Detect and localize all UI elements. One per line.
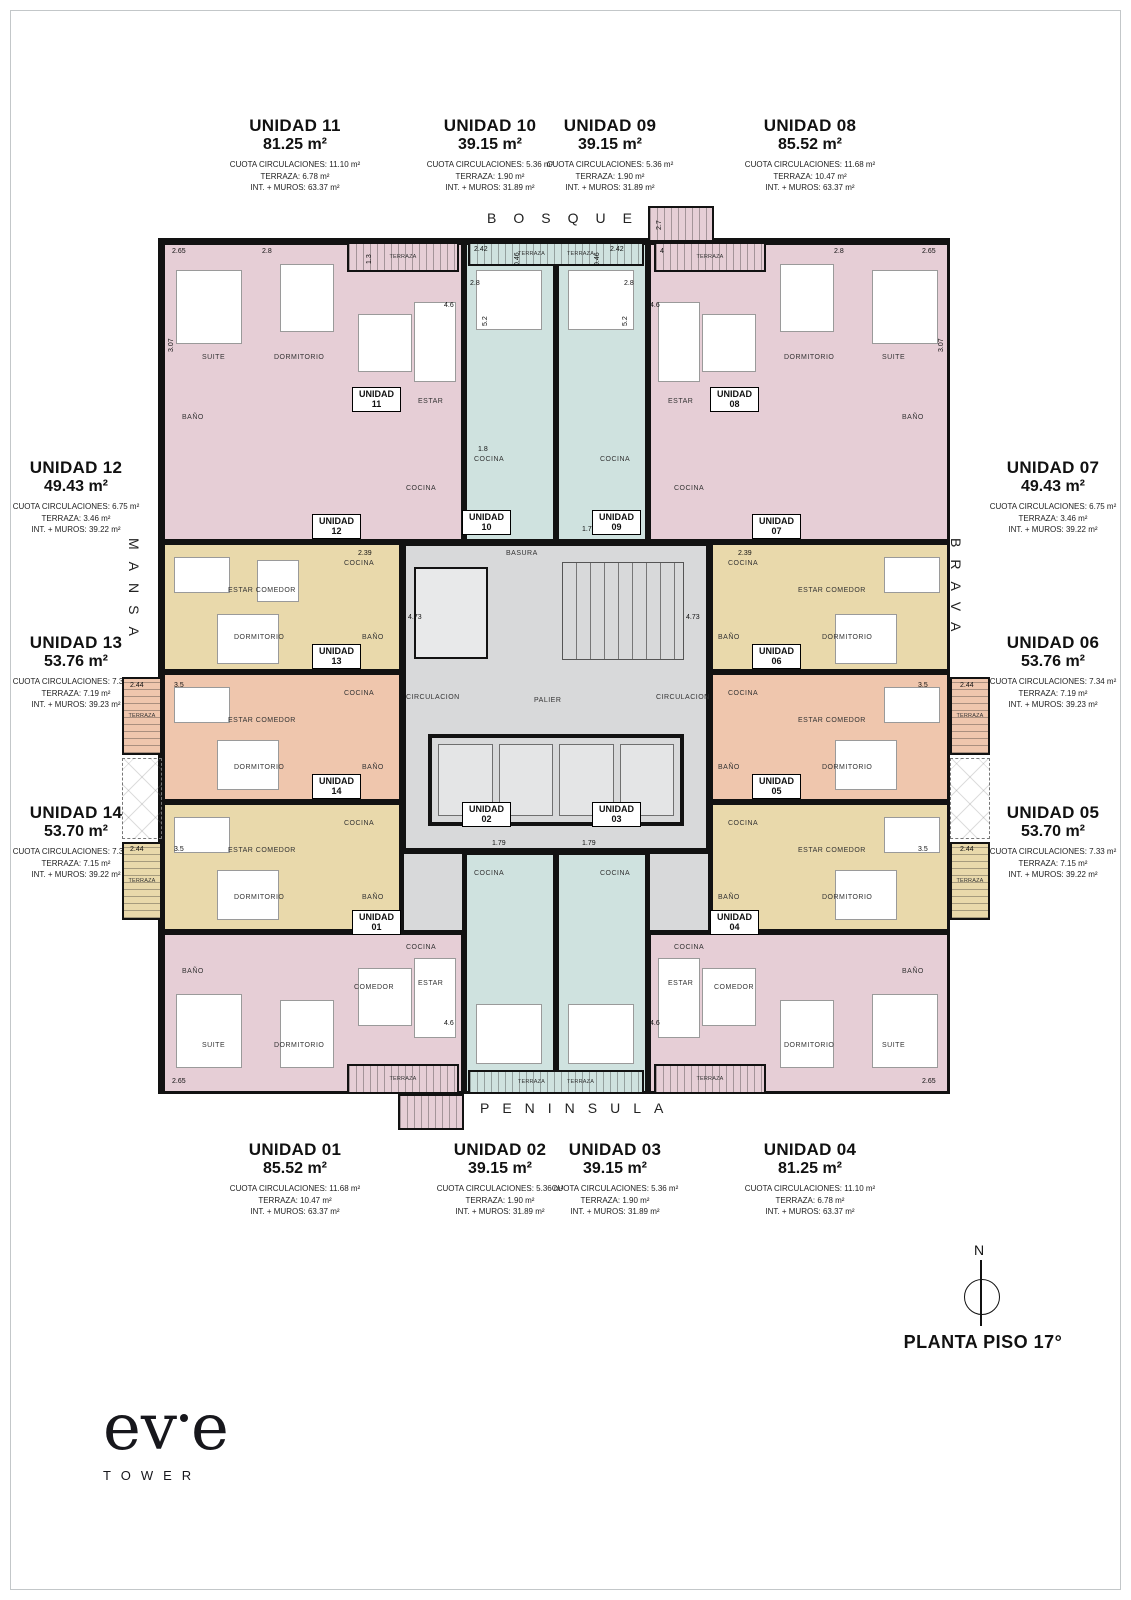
room-label-dormitorio: DORMITORIO (822, 634, 872, 641)
dim-label: 3.5 (918, 846, 928, 853)
room-label-basura: BASURA (506, 550, 538, 557)
unit-area: 85.52 m² (170, 1160, 420, 1178)
dim-label: 1.79 (582, 840, 596, 847)
unit-area: 81.25 m² (700, 1160, 920, 1178)
service-elevator (414, 567, 488, 659)
dim-label: 4.6 (444, 302, 454, 309)
street-brava: BRAVA (948, 538, 964, 643)
tag-unidad-14: UNIDAD14 (312, 774, 361, 799)
terraza-strip-u08: TERRAZA (654, 242, 766, 272)
room-label-estar-comedor: ESTAR COMEDOR (798, 717, 866, 724)
furniture (702, 968, 756, 1026)
open-area-right (950, 758, 990, 839)
furniture (176, 270, 242, 344)
room-label-bano: BAÑO (718, 764, 740, 771)
unit-label-04: UNIDAD 04 81.25 m² CUOTA CIRCULACIONES: … (700, 1140, 920, 1218)
dim-label: 2.65 (922, 248, 936, 255)
tag-unidad-13: UNIDAD13 (312, 644, 361, 669)
terraza-u05: TERRAZA (950, 842, 990, 920)
logo-wordmark: ev e (103, 1396, 229, 1460)
dim-label: 5.2 (622, 316, 629, 326)
terraza-strip-u04: TERRAZA (654, 1064, 766, 1094)
unit-name: UNIDAD 05 (975, 803, 1131, 823)
tag-unidad-02: UNIDAD02 (462, 802, 511, 827)
room-label-estar: ESTAR (418, 980, 443, 987)
street-bosque: BOSQUE (487, 210, 649, 226)
room-label-bano: BAÑO (182, 414, 204, 421)
zone-corridor-right (648, 852, 710, 932)
brand-logo: ev e TOWER (103, 1396, 229, 1483)
unit-details: CUOTA CIRCULACIONES: 6.75 m² TERRAZA: 3.… (0, 501, 152, 536)
room-label-estar: ESTAR (668, 980, 693, 987)
dim-label: 4.73 (408, 614, 422, 621)
unit-area: 81.25 m² (170, 136, 420, 154)
tag-unidad-06: UNIDAD06 (752, 644, 801, 669)
room-label-dormitorio: DORMITORIO (784, 1042, 834, 1049)
unit-area: 53.76 m² (975, 653, 1131, 671)
room-label-comedor: COMEDOR (714, 984, 754, 991)
room-label-suite: SUITE (882, 1042, 905, 1049)
dim-label: 4.6 (650, 1020, 660, 1027)
logo-subtitle: TOWER (103, 1468, 229, 1483)
unit-label-07: UNIDAD 07 49.43 m² CUOTA CIRCULACIONES: … (975, 458, 1131, 536)
furniture (568, 1004, 634, 1064)
dim-label: 2.65 (172, 1078, 186, 1085)
unit-name: UNIDAD 11 (170, 116, 420, 136)
room-label-estar-comedor: ESTAR COMEDOR (228, 847, 296, 854)
furniture (414, 302, 456, 382)
room-label-bano: BAÑO (362, 634, 384, 641)
plan-title: PLANTA PISO 17° (878, 1332, 1088, 1353)
room-label-suite: SUITE (202, 1042, 225, 1049)
dim-label: 3.5 (174, 846, 184, 853)
dim-label: 1.3 (366, 254, 373, 264)
unit-details: CUOTA CIRCULACIONES: 11.10 m² TERRAZA: 6… (170, 159, 420, 194)
unit-label-12: UNIDAD 12 49.43 m² CUOTA CIRCULACIONES: … (0, 458, 152, 536)
furniture (884, 687, 940, 723)
furniture (358, 314, 412, 372)
room-label-cocina: COCINA (344, 820, 374, 827)
furniture (872, 994, 938, 1068)
room-label-estar-comedor: ESTAR COMEDOR (798, 587, 866, 594)
room-label-cocina: COCINA (674, 485, 704, 492)
furniture (257, 560, 299, 602)
unit-area: 39.15 m² (525, 1160, 705, 1178)
furniture (780, 1000, 834, 1068)
dim-label: 2.42 (610, 246, 624, 253)
dim-label: 0.46 (514, 252, 521, 266)
dim-label: 2.8 (834, 248, 844, 255)
furniture (780, 264, 834, 332)
unit-label-01: UNIDAD 01 85.52 m² CUOTA CIRCULACIONES: … (170, 1140, 420, 1218)
logo-dot (180, 1414, 188, 1422)
room-label-estar-comedor: ESTAR COMEDOR (228, 587, 296, 594)
furniture (280, 1000, 334, 1068)
room-label-cocina: COCINA (474, 456, 504, 463)
room-label-bano: BAÑO (718, 894, 740, 901)
room-label-bano: BAÑO (902, 968, 924, 975)
dim-label: 2.44 (130, 846, 144, 853)
furniture (358, 968, 412, 1026)
room-label-suite: SUITE (202, 354, 225, 361)
tag-unidad-07: UNIDAD07 (752, 514, 801, 539)
furniture (872, 270, 938, 344)
dim-label: 2.44 (960, 846, 974, 853)
dim-label: 2.39 (358, 550, 372, 557)
room-label-cocina: COCINA (406, 485, 436, 492)
dim-label: 3.07 (168, 338, 175, 352)
room-label-cocina: COCINA (728, 820, 758, 827)
tag-unidad-08: UNIDAD08 (710, 387, 759, 412)
room-label-cocina: COCINA (406, 944, 436, 951)
unit-name: UNIDAD 08 (700, 116, 920, 136)
tag-unidad-01: UNIDAD01 (352, 910, 401, 935)
tag-unidad-04: UNIDAD04 (710, 910, 759, 935)
room-label-bano: BAÑO (718, 634, 740, 641)
terraza-strip-u11: TERRAZA (347, 242, 459, 272)
room-label-cocina: COCINA (728, 560, 758, 567)
room-label-palier: PALIER (534, 697, 561, 704)
unit-label-11: UNIDAD 11 81.25 m² CUOTA CIRCULACIONES: … (170, 116, 420, 194)
room-label-bano: BAÑO (362, 894, 384, 901)
street-mansa: MANSA (126, 538, 142, 648)
unit-details: CUOTA CIRCULACIONES: 11.68 m² TERRAZA: 1… (170, 1183, 420, 1218)
unit-details: CUOTA CIRCULACIONES: 5.36 m² TERRAZA: 1.… (525, 1183, 705, 1218)
dim-label: 5.2 (482, 316, 489, 326)
room-label-estar: ESTAR (668, 398, 693, 405)
room-label-bano: BAÑO (902, 414, 924, 421)
unit-area: 85.52 m² (700, 136, 920, 154)
furniture (658, 302, 700, 382)
unit-name: UNIDAD 06 (975, 633, 1131, 653)
unit-area: 53.70 m² (975, 823, 1131, 841)
tag-unidad-12: UNIDAD12 (312, 514, 361, 539)
room-label-suite: SUITE (882, 354, 905, 361)
room-label-estar: ESTAR (418, 398, 443, 405)
unit-label-08: UNIDAD 08 85.52 m² CUOTA CIRCULACIONES: … (700, 116, 920, 194)
floor-plan: TERRAZA TERRAZA TERRAZA TERRAZA TERRAZA … (158, 238, 950, 1094)
unit-label-09: UNIDAD 09 39.15 m² CUOTA CIRCULACIONES: … (520, 116, 700, 194)
room-label-bano: BAÑO (182, 968, 204, 975)
unit-name: UNIDAD 01 (170, 1140, 420, 1160)
room-label-dormitorio: DORMITORIO (234, 634, 284, 641)
dim-label: 2.44 (130, 682, 144, 689)
furniture (476, 1004, 542, 1064)
room-label-dormitorio: DORMITORIO (274, 354, 324, 361)
dim-label: 4 (660, 248, 664, 255)
room-label-cocina: COCINA (344, 560, 374, 567)
dim-label: 2.65 (172, 248, 186, 255)
furniture (702, 314, 756, 372)
dim-label: 2.39 (738, 550, 752, 557)
unit-area: 49.43 m² (0, 478, 152, 496)
room-label-circulacion: CIRCULACION (656, 694, 710, 701)
tag-unidad-05: UNIDAD05 (752, 774, 801, 799)
dim-label: 4.73 (686, 614, 700, 621)
unit-area: 53.76 m² (0, 653, 152, 671)
unit-name: UNIDAD 12 (0, 458, 152, 478)
compass-north-label: N (974, 1242, 984, 1258)
room-label-dormitorio: DORMITORIO (822, 764, 872, 771)
room-label-cocina: COCINA (474, 870, 504, 877)
dim-label: 2.42 (474, 246, 488, 253)
zone-corridor-left (402, 852, 464, 932)
room-label-estar-comedor: ESTAR COMEDOR (228, 717, 296, 724)
furniture (174, 557, 230, 593)
dim-label: 2.65 (922, 1078, 936, 1085)
unit-details: CUOTA CIRCULACIONES: 6.75 m² TERRAZA: 3.… (975, 501, 1131, 536)
stairwell (562, 562, 684, 660)
unit-details: CUOTA CIRCULACIONES: 11.68 m² TERRAZA: 1… (700, 159, 920, 194)
dim-label: 1.8 (478, 446, 488, 453)
room-label-dormitorio: DORMITORIO (234, 764, 284, 771)
unit-name: UNIDAD 04 (700, 1140, 920, 1160)
dim-label: 0.46 (594, 252, 601, 266)
furniture (176, 994, 242, 1068)
dim-label: 3.5 (918, 682, 928, 689)
unit-details: CUOTA CIRCULACIONES: 7.33 m² TERRAZA: 7.… (975, 846, 1131, 881)
compass-icon (964, 1279, 1000, 1315)
room-label-dormitorio: DORMITORIO (274, 1042, 324, 1049)
room-label-cocina: COCINA (600, 870, 630, 877)
open-area-left (122, 758, 162, 839)
unit-name: UNIDAD 09 (520, 116, 700, 136)
tag-unidad-11: UNIDAD11 (352, 387, 401, 412)
dim-label: 4.6 (444, 1020, 454, 1027)
unit-label-03: UNIDAD 03 39.15 m² CUOTA CIRCULACIONES: … (525, 1140, 705, 1218)
dim-label: 2.44 (960, 682, 974, 689)
street-peninsula: PENINSULA (480, 1100, 676, 1116)
room-label-cocina: COCINA (600, 456, 630, 463)
dim-label: 3.07 (938, 338, 945, 352)
terraza-u14: TERRAZA (122, 842, 162, 920)
unit-label-05: UNIDAD 05 53.70 m² CUOTA CIRCULACIONES: … (975, 803, 1131, 881)
dim-label: 1.79 (492, 840, 506, 847)
room-label-estar-comedor: ESTAR COMEDOR (798, 847, 866, 854)
room-label-dormitorio: DORMITORIO (784, 354, 834, 361)
furniture (884, 817, 940, 853)
tag-unidad-03: UNIDAD03 (592, 802, 641, 827)
dim-label: 2.8 (262, 248, 272, 255)
furniture (884, 557, 940, 593)
tag-unidad-09: UNIDAD09 (592, 510, 641, 535)
dim-label: 2.8 (470, 280, 480, 287)
floorplan-page: UNIDAD 11 81.25 m² CUOTA CIRCULACIONES: … (0, 0, 1131, 1600)
room-label-cocina: COCINA (728, 690, 758, 697)
room-label-cocina: COCINA (344, 690, 374, 697)
unit-details: CUOTA CIRCULACIONES: 11.10 m² TERRAZA: 6… (700, 1183, 920, 1218)
terraza-tower-u01 (398, 1094, 464, 1130)
dim-label: 3.5 (174, 682, 184, 689)
unit-details: CUOTA CIRCULACIONES: 5.36 m² TERRAZA: 1.… (520, 159, 700, 194)
unit-details: CUOTA CIRCULACIONES: 7.34 m² TERRAZA: 7.… (975, 676, 1131, 711)
unit-label-06: UNIDAD 06 53.76 m² CUOTA CIRCULACIONES: … (975, 633, 1131, 711)
terraza-strip-u02-u03: TERRAZA TERRAZA (468, 1070, 644, 1094)
room-label-bano: BAÑO (362, 764, 384, 771)
unit-name: UNIDAD 07 (975, 458, 1131, 478)
dim-label: 4.6 (650, 302, 660, 309)
room-label-cocina: COCINA (674, 944, 704, 951)
dim-label: 2.7 (656, 220, 663, 230)
terraza-strip-u01: TERRAZA (347, 1064, 459, 1094)
unit-area: 49.43 m² (975, 478, 1131, 496)
unit-area: 39.15 m² (520, 136, 700, 154)
dim-label: 2.8 (624, 280, 634, 287)
tag-unidad-10: UNIDAD10 (462, 510, 511, 535)
furniture (280, 264, 334, 332)
room-label-dormitorio: DORMITORIO (822, 894, 872, 901)
furniture (174, 687, 230, 723)
unit-name: UNIDAD 03 (525, 1140, 705, 1160)
furniture (658, 958, 700, 1038)
room-label-comedor: COMEDOR (354, 984, 394, 991)
room-label-dormitorio: DORMITORIO (234, 894, 284, 901)
room-label-circulacion: CIRCULACION (406, 694, 460, 701)
